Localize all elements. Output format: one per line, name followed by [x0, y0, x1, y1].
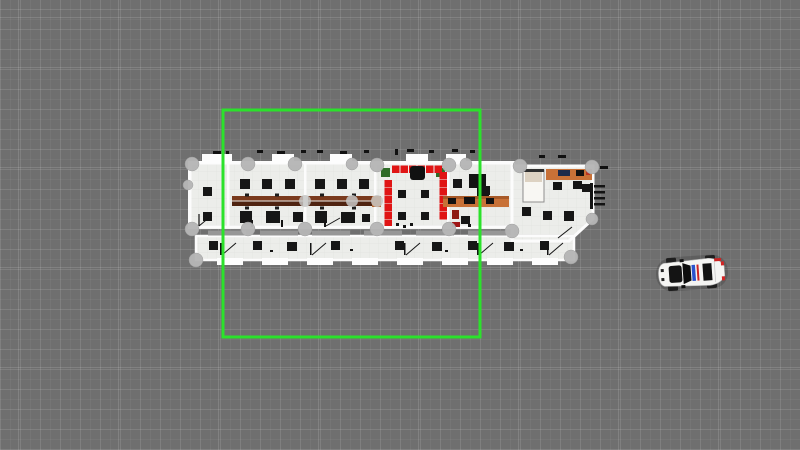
stair-step: [594, 203, 605, 206]
car-rear-window: [702, 263, 712, 281]
car-mirror: [680, 259, 684, 262]
door-hinge: [404, 243, 406, 255]
desk: [395, 241, 404, 250]
pillar: [460, 158, 472, 170]
balcony-tab: [532, 258, 558, 265]
red-sofa: [426, 166, 434, 174]
door-dot: [445, 250, 448, 252]
window-mark: [558, 155, 566, 158]
pillar: [586, 213, 598, 225]
desk: [337, 179, 347, 189]
statue: [410, 166, 425, 180]
chair: [275, 207, 279, 210]
desk: [253, 241, 262, 250]
low-wall-dash: [208, 231, 246, 236]
red-sofa: [385, 204, 393, 212]
chair: [245, 207, 249, 210]
car-rear-accent: [714, 258, 721, 261]
pillar: [185, 222, 199, 236]
desk: [398, 212, 406, 220]
pillar: [513, 159, 527, 173]
door-hinge: [547, 243, 549, 255]
pillar: [185, 157, 199, 171]
conference-table: [308, 196, 374, 201]
simulation-viewport[interactable]: [0, 0, 800, 450]
desk: [481, 186, 490, 195]
window-bar: [590, 183, 593, 209]
red-sofa: [385, 188, 393, 196]
pillar: [298, 222, 312, 236]
car-model[interactable]: [655, 254, 729, 293]
balcony-tab: [262, 258, 288, 265]
balcony-tab: [307, 258, 333, 265]
door-dot: [403, 225, 406, 228]
car-headlight: [661, 269, 664, 272]
roof-tab: [202, 154, 232, 163]
pillar: [442, 158, 456, 172]
chair: [275, 194, 279, 197]
chair: [245, 194, 249, 197]
wall-divider: [374, 164, 377, 226]
conference-table: [232, 196, 303, 201]
pillar: [241, 222, 255, 236]
pillar: [505, 224, 519, 238]
simulation-canvas[interactable]: [0, 0, 800, 450]
chair: [320, 207, 324, 210]
desk: [469, 174, 486, 188]
window-mark: [277, 151, 285, 154]
red-sofa: [440, 188, 448, 196]
chair: [320, 194, 324, 197]
pillar: [585, 160, 599, 174]
pillar: [442, 222, 456, 236]
chair: [573, 181, 582, 189]
desk: [240, 179, 250, 189]
balcony-tab: [487, 258, 513, 265]
desk: [582, 184, 590, 192]
stair-step: [594, 197, 605, 200]
door-dot: [410, 223, 413, 226]
window-mark: [407, 149, 414, 152]
window-mark: [226, 151, 229, 154]
desk: [203, 187, 212, 196]
window-mark: [364, 150, 369, 153]
red-sofa: [440, 180, 448, 188]
window-mark: [213, 151, 221, 154]
conference-table: [232, 202, 303, 207]
window-mark: [340, 151, 347, 154]
red-sofa: [385, 220, 393, 226]
balcony-tab: [397, 258, 423, 265]
building-model[interactable]: [183, 149, 608, 267]
desk: [240, 211, 252, 223]
desk: [504, 242, 514, 251]
pillar: [370, 222, 384, 236]
pillar: [288, 157, 302, 171]
door-dot: [468, 224, 471, 227]
pillar: [183, 180, 193, 190]
low-wall-dash: [260, 231, 298, 236]
desk: [315, 179, 325, 189]
counter-item: [486, 198, 494, 204]
desk: [522, 207, 531, 216]
ceiling-light: [346, 195, 358, 207]
ceiling-light: [371, 195, 383, 207]
window-mark: [429, 150, 434, 153]
wall-divider: [227, 164, 230, 226]
desk: [461, 216, 470, 224]
desk: [398, 190, 406, 198]
desk: [564, 211, 574, 221]
car-mirror: [681, 285, 685, 288]
door-hinge: [477, 243, 479, 255]
roof-tab: [406, 154, 428, 163]
red-sofa: [385, 196, 393, 204]
desk: [453, 179, 462, 188]
counter-item: [464, 197, 475, 204]
conference-table: [308, 202, 374, 207]
desk: [359, 179, 369, 189]
window-mark: [539, 155, 545, 158]
pillar: [564, 250, 578, 264]
door-dot: [396, 223, 399, 226]
balcony-tab: [442, 258, 468, 265]
car-taillight: [722, 276, 725, 280]
red-chair: [452, 210, 459, 219]
chair: [553, 182, 562, 190]
counter-item: [448, 198, 456, 204]
red-sofa: [440, 172, 448, 180]
window-mark: [470, 150, 475, 153]
bed-pillow: [525, 172, 542, 182]
door-dot: [270, 250, 273, 252]
balcony-tab: [217, 258, 243, 265]
window-mark: [257, 150, 263, 153]
desk: [209, 241, 218, 250]
car-headlight: [661, 278, 664, 281]
desk: [341, 212, 355, 223]
desk: [432, 242, 442, 251]
desk: [266, 211, 280, 223]
wall-left: [188, 161, 192, 229]
desk: [543, 211, 552, 220]
red-sofa: [385, 212, 393, 220]
desk: [468, 241, 477, 250]
door-hinge: [310, 243, 312, 255]
balcony-tab: [352, 258, 378, 265]
window-mark: [317, 150, 323, 153]
wall-upper-bottom: [188, 226, 515, 229]
door-hinge: [324, 220, 326, 227]
desk: [362, 214, 370, 222]
wall-divider: [447, 164, 450, 226]
pillar: [189, 253, 203, 267]
car-hood: [668, 265, 682, 283]
desk: [293, 212, 303, 222]
pillar: [241, 157, 255, 171]
window-mark: [452, 149, 458, 152]
desk: [287, 242, 297, 251]
red-sofa: [385, 180, 393, 188]
counter-item: [576, 170, 584, 176]
counter-item: [558, 170, 570, 176]
car-taillight: [721, 261, 724, 265]
car-windshield: [682, 263, 691, 285]
window-mark: [395, 149, 398, 155]
stair-step: [594, 185, 605, 188]
window-mark: [600, 166, 608, 169]
wall-divider: [304, 164, 307, 226]
desk: [262, 179, 272, 189]
door-dot: [350, 249, 353, 251]
pillar: [370, 158, 384, 172]
red-sofa: [392, 166, 400, 174]
desk: [331, 241, 340, 250]
door-hinge: [281, 220, 283, 227]
pillar: [346, 158, 358, 170]
red-sofa: [440, 212, 448, 220]
door-hinge: [220, 243, 222, 255]
ceiling-light: [299, 195, 311, 207]
desk: [285, 179, 295, 189]
low-wall-dash: [468, 231, 506, 236]
stair-step: [594, 191, 605, 194]
desk: [421, 190, 429, 198]
desk: [421, 212, 429, 220]
window-mark: [301, 150, 306, 153]
red-sofa: [435, 166, 443, 174]
red-sofa: [401, 166, 409, 174]
door-dot: [520, 249, 523, 251]
low-wall-dash: [312, 231, 350, 236]
